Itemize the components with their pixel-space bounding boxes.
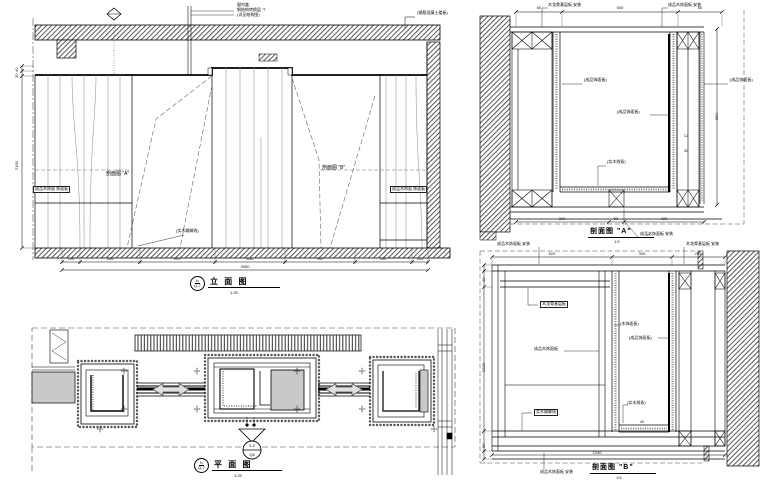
view-title-section-b: 剖面图 "B" [592, 462, 634, 472]
floor-slab-hatch [35, 248, 450, 258]
beam-hatch [57, 40, 76, 58]
drawing-sheet: { "elevation": { "title": "立 面 图", "scal… [0, 0, 760, 483]
skirting-lines [35, 203, 427, 240]
callout-leaders [522, 247, 684, 469]
callout-bottom: 成品木饰面板 安装 [640, 232, 673, 237]
bottom-dimension [514, 220, 706, 224]
curtain-box-callout-line3: (详见结构图) [237, 13, 260, 18]
panel-label-right: (成品饰面板) [730, 78, 753, 83]
top-dimension [490, 255, 727, 265]
grain-lines-right [386, 75, 422, 248]
wall-hatch [480, 16, 510, 232]
title-underline [212, 470, 282, 471]
dim-label: 60 [614, 216, 618, 221]
door-leaf-pocket [271, 370, 304, 410]
right-wall-lines [438, 329, 452, 475]
right-wall-hatch [427, 42, 440, 248]
dim-label: 40 [684, 148, 688, 153]
swing-dashed-lines [127, 76, 375, 248]
section-ref-b: 剖面图 "B" [322, 166, 345, 172]
dim-label: 100 [417, 256, 424, 261]
dim-total-label: 1240 [593, 450, 602, 455]
dim-label: 12 [684, 133, 688, 138]
title-underline [590, 473, 656, 474]
dim-label: 30 [14, 74, 19, 78]
direction-arrow-icon [326, 384, 362, 396]
dim-label: 600 [617, 5, 624, 10]
title-underline [208, 287, 280, 288]
dim-label: 300 [559, 216, 566, 221]
cabinet-detail [50, 330, 68, 363]
frame-tag: 木龙骨基层板 [540, 301, 568, 308]
view-title-section-a: 剖面图 "A" [590, 226, 632, 236]
wall-hatch [727, 251, 759, 466]
ceiling-line [35, 68, 440, 75]
panel-channel [612, 271, 676, 432]
callout-top-right: 木龙骨基层板 安装 [686, 242, 719, 247]
view-title-plan: 平 面 图 [214, 459, 252, 470]
dim-label: 40 [481, 278, 486, 282]
material-tag-right: 成品木饰面 饰面板 [390, 186, 427, 193]
wall-fill [32, 372, 75, 403]
dim-total-label: 3550 [241, 264, 250, 269]
dim-label: 100 [68, 256, 75, 261]
elevation-view [10, 2, 462, 300]
section-ref-a: 剖面图 "A" [106, 172, 129, 178]
view-scale: 1:25 [230, 290, 238, 295]
dim-label: 350 [380, 256, 387, 261]
dim-label: 850 [714, 113, 719, 120]
panel-tag: 成品木饰面板 [534, 347, 558, 352]
jamb-lines [35, 42, 427, 248]
callout-top-left: 成品木饰面板 安装 [497, 242, 530, 247]
dim-label: 2300 [14, 161, 19, 170]
channel-label-2: (成品饰面板) [629, 336, 652, 341]
dim-label: 620 [549, 251, 556, 256]
door-leaf-open [220, 369, 254, 409]
dim-label: 60 [537, 5, 541, 10]
section-b-view [472, 241, 760, 483]
callout-bottom: 成品木饰面板 安装 [540, 470, 573, 475]
top-dimension [514, 10, 724, 26]
title-underline [588, 237, 654, 238]
grain-lines-left [48, 75, 120, 248]
dim-label: 40 [640, 419, 644, 424]
dim-label: 300 [639, 251, 646, 256]
dim-label: 900 [317, 256, 324, 261]
section-marker-sheet: Q6 [249, 452, 254, 457]
callout-top-left: 木龙骨基层板 安装 [548, 3, 581, 8]
section-a-view [472, 2, 760, 244]
dim-label: 350 [107, 256, 114, 261]
view-scale: 1:25 [234, 473, 242, 478]
dim-label: 900 [174, 256, 181, 261]
view-title-elevation: 立 面 图 [210, 276, 248, 287]
channel-label-3: (实木线条) [627, 401, 646, 406]
dim-label: 40 [14, 68, 19, 72]
outer-board [700, 32, 704, 204]
material-tag-left: 成品木饰面 饰面板 [33, 186, 70, 193]
dim-label: 320 [661, 216, 668, 221]
dim-label: 260 [695, 251, 702, 256]
furring-hatch [259, 54, 277, 61]
ceiling-slab-hatch [35, 25, 440, 40]
centerline-datum-icon [107, 8, 121, 74]
skirting-tag: 实木踢脚线 [534, 409, 558, 416]
panel-label-left: (成品饰面板) [584, 78, 607, 83]
bottom-dimension [490, 453, 727, 457]
left-dimension [482, 263, 492, 461]
dim-label: 60 [481, 444, 486, 448]
trim-label: (实木线条) [607, 160, 626, 165]
panel-label-center: (成品饰面板) [617, 110, 640, 115]
blocking-x-boxes [512, 32, 699, 207]
dim-label: 60 [698, 5, 702, 10]
callout-top-right: 成品木饰面板 安装 [668, 3, 701, 8]
grain-lines-center [226, 68, 282, 248]
panel-channel [553, 32, 677, 192]
sheet-ref-circle: b Q-7 [194, 458, 209, 473]
skirting-leader [138, 235, 184, 246]
sheet-ref-circle: b Q-7 [190, 276, 205, 291]
slab-callout: (钢筋混凝土楼板) [417, 11, 448, 16]
direction-arrow-icon [153, 384, 189, 396]
blocking-x-boxes [679, 271, 725, 446]
curtain-band-hatch [135, 335, 361, 351]
view-scale: 1:5 [616, 475, 622, 480]
left-dimension-chain [20, 64, 34, 250]
section-marker-number: 2-2 [249, 443, 255, 448]
skirting-callout: (实木踢脚线) [176, 229, 199, 234]
curtain-box-leader [188, 6, 234, 75]
channel-label-1: (木饰面板) [620, 322, 639, 327]
dim-label: 2230 [481, 363, 486, 372]
dim-label: 850 [247, 256, 254, 261]
